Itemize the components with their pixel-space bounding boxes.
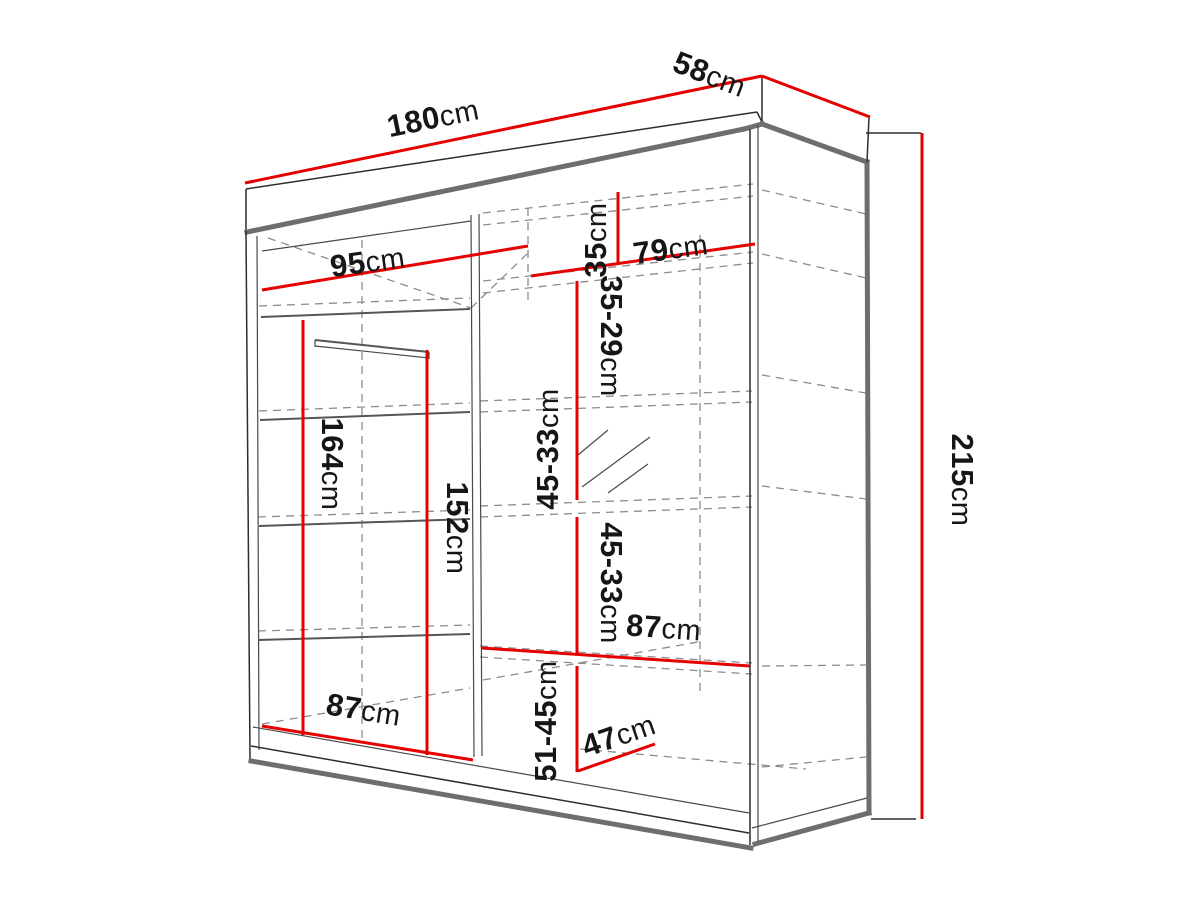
dim-label-left-bottom-width: 87cm xyxy=(324,686,404,732)
hanging-rail xyxy=(315,340,429,359)
side-bottom-edge xyxy=(755,813,869,844)
dim-line-bottom-87 xyxy=(262,726,473,760)
dim-line-width-180 xyxy=(245,76,762,183)
dim-label-right-hang-height: 152cm xyxy=(440,482,475,575)
interior-shelf-lines xyxy=(258,221,471,640)
floor-line xyxy=(253,727,749,813)
wardrobe-dimension-diagram: 180cm 58cm 215cm 95cm 79cm 35cm 35-29cm … xyxy=(0,0,1200,899)
dim-label-right-shelf-width: 87cm xyxy=(625,607,702,647)
plinth-top-line xyxy=(251,746,749,833)
crown-bottom-edge xyxy=(247,129,744,232)
center-divider-right xyxy=(479,214,482,756)
left-shelf-4 xyxy=(258,634,470,640)
front-left-edge xyxy=(246,231,250,759)
dim-label-shelf-gap-4: 45-33cm xyxy=(594,522,629,643)
front-left-inner-edge xyxy=(257,236,259,750)
dim-label-height: 215cm xyxy=(945,434,980,527)
dim-label-shelf-gap-2: 35-29cm xyxy=(594,275,629,396)
depth-tick xyxy=(867,117,869,162)
dim-label-bottom-gap: 51-45cm xyxy=(528,660,563,781)
dimension-labels: 180cm 58cm 215cm 95cm 79cm 35cm 35-29cm … xyxy=(315,44,980,781)
left-top-shelf xyxy=(261,309,470,317)
bottom-edge xyxy=(251,761,751,848)
dim-label-top-shelf-gap: 35cm xyxy=(578,202,613,277)
dim-label-shelf-gap-3: 45-33cm xyxy=(530,388,565,509)
dim-line-depth-58 xyxy=(762,76,870,117)
dim-label-left-inner-width: 95cm xyxy=(328,239,407,284)
dim-label-depth: 58cm xyxy=(668,44,751,104)
dim-label-left-hang-height: 164cm xyxy=(315,418,350,511)
left-shelf-2 xyxy=(260,412,470,420)
left-shelf-3 xyxy=(259,519,470,526)
diagram-canvas: 180cm 58cm 215cm 95cm 79cm 35cm 35-29cm … xyxy=(0,0,1200,899)
dim-label-right-inner-width: 79cm xyxy=(631,226,710,271)
side-plinth-line xyxy=(752,798,867,828)
side-back-edge xyxy=(867,162,869,813)
dim-line-shelf-87 xyxy=(482,648,750,666)
side-top-edge xyxy=(762,124,867,162)
mirror-glass-marks xyxy=(578,430,650,493)
